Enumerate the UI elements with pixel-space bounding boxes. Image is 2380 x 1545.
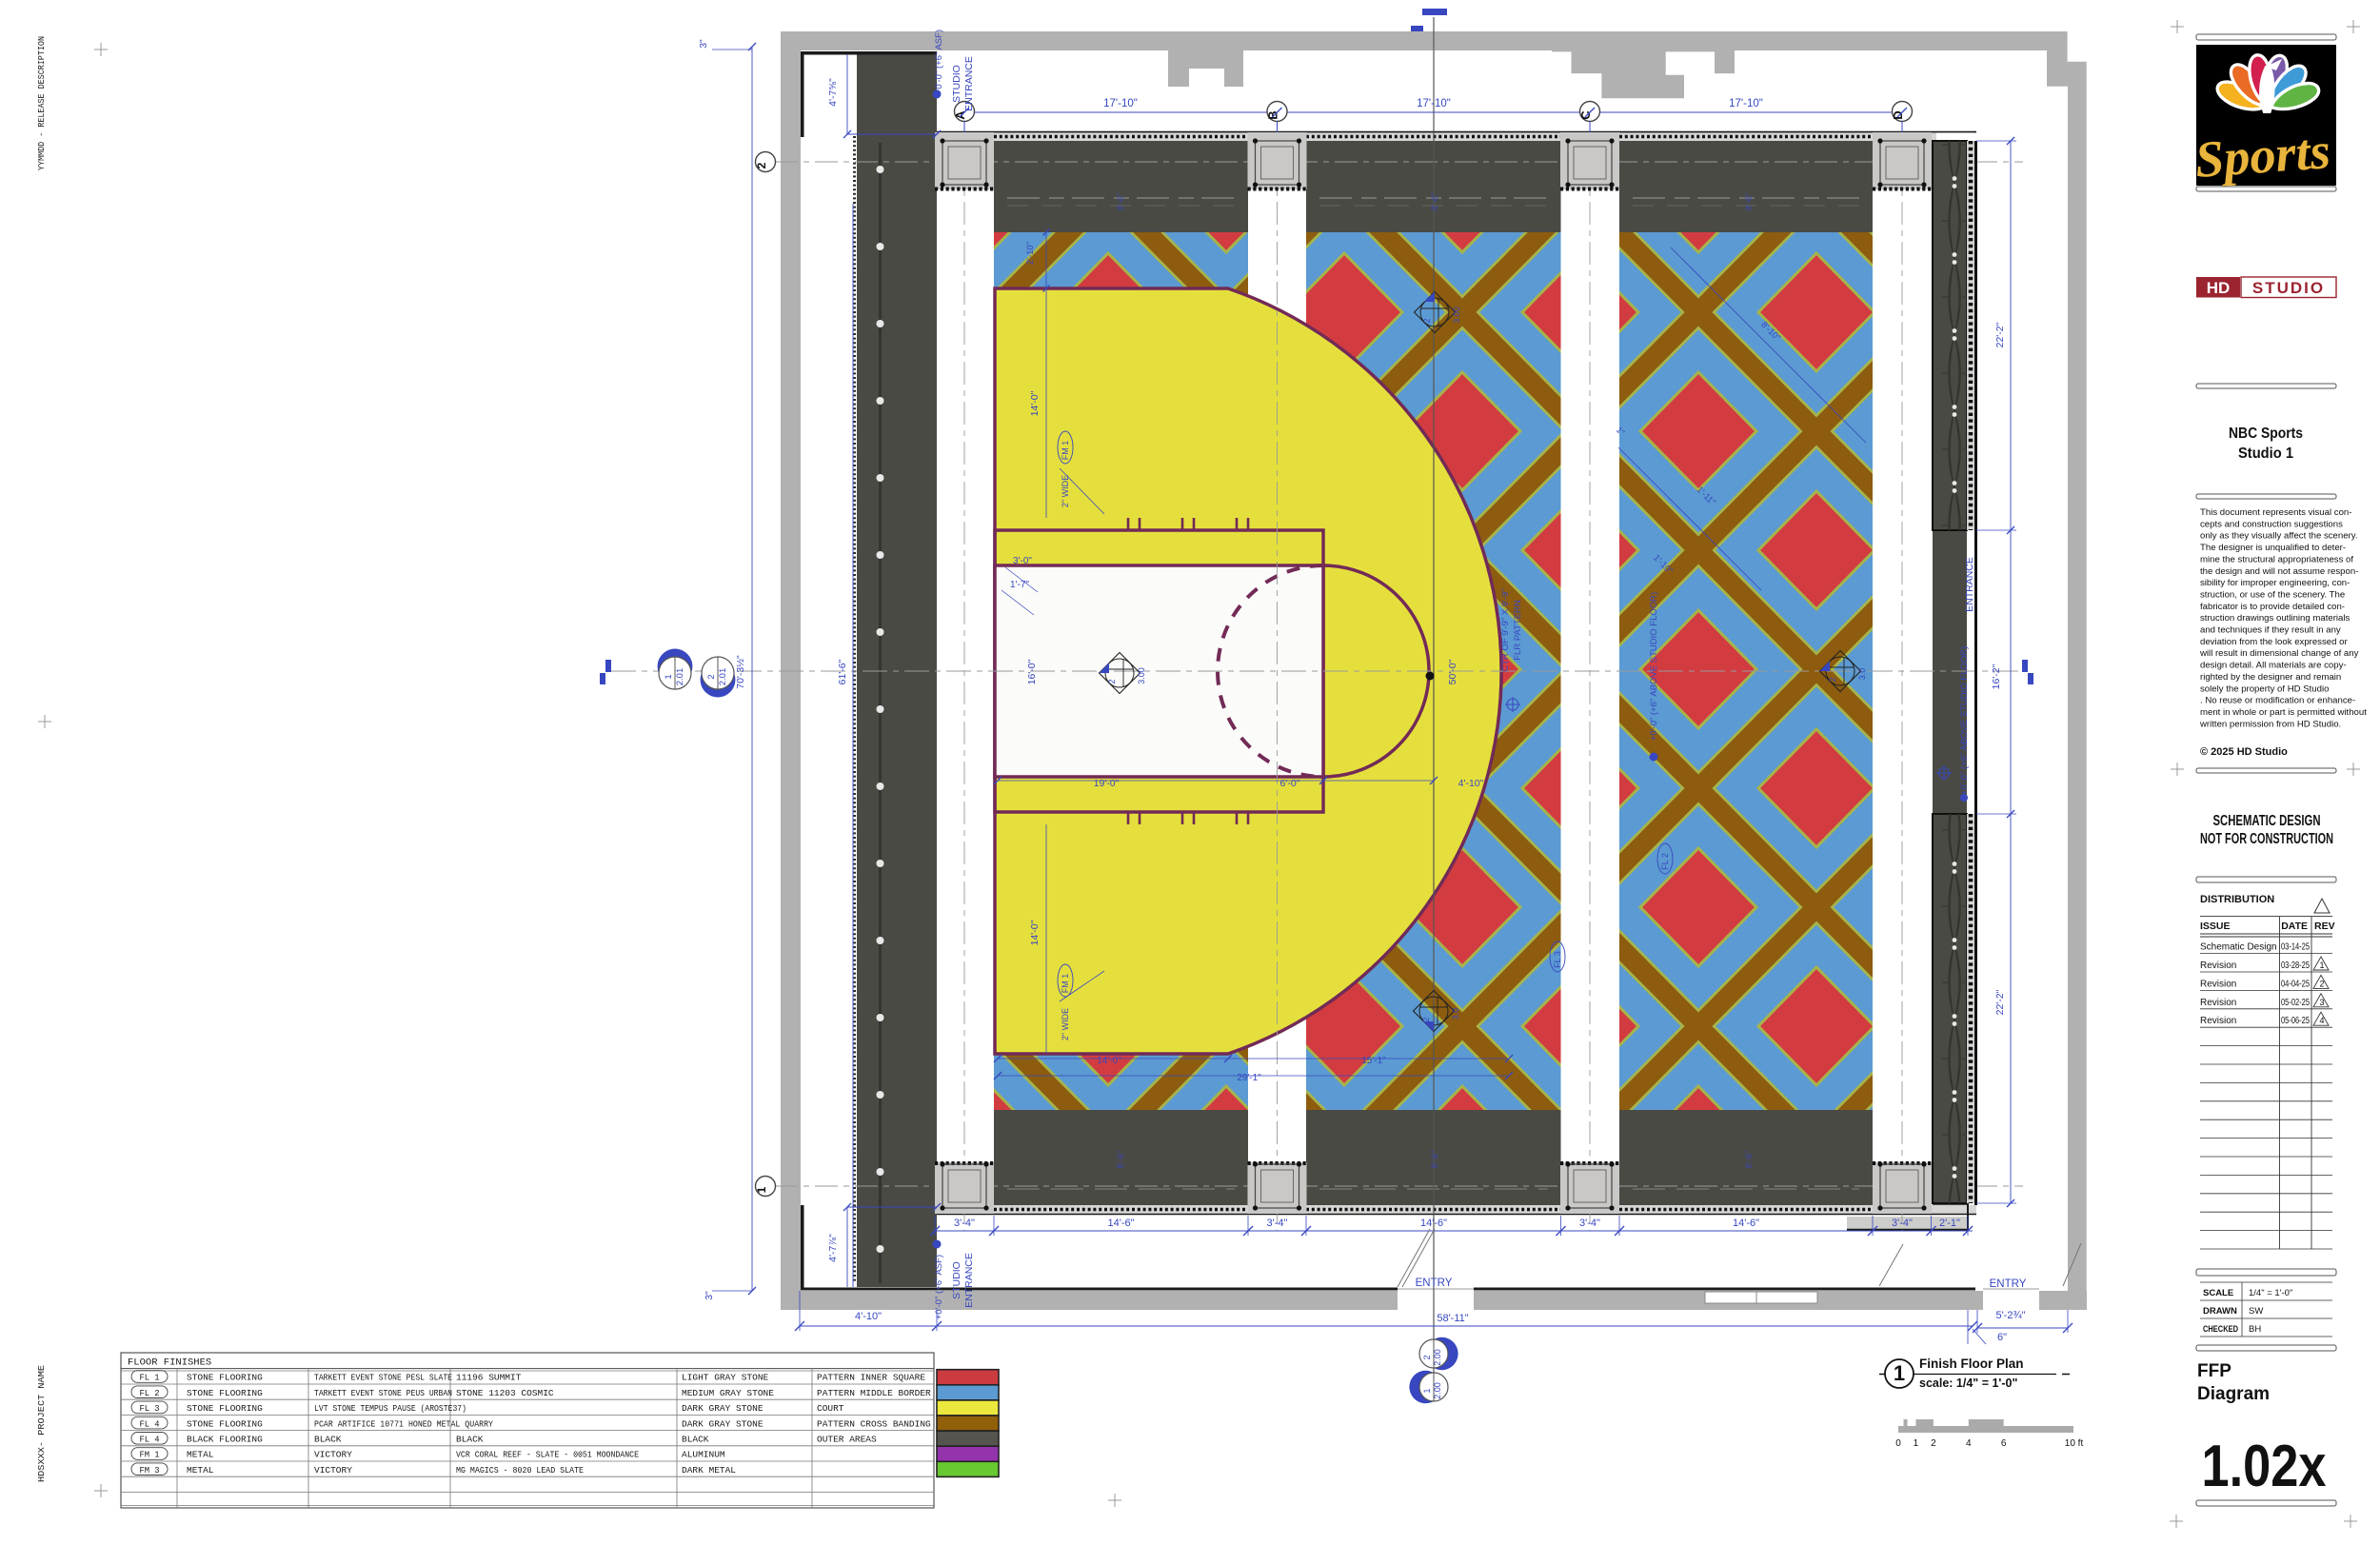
- svg-text:BLACK: BLACK: [682, 1435, 709, 1445]
- svg-text:3'-4": 3'-4": [1892, 1218, 1913, 1229]
- svg-text:VICTORY: VICTORY: [314, 1450, 352, 1460]
- svg-text:58'-11": 58'-11": [1437, 1313, 1468, 1324]
- svg-text:STONE FLOORING: STONE FLOORING: [187, 1403, 263, 1414]
- svg-text:The designer is unqualified to: The designer is unqualified to deter-: [2200, 543, 2346, 553]
- svg-text:FLR PATTERN: FLR PATTERN: [1513, 600, 1523, 661]
- svg-text:2: 2: [1422, 1355, 1432, 1359]
- svg-text:FL 4: FL 4: [139, 1419, 159, 1429]
- svg-text:CTR OF 9'-9" X 9'-9": CTR OF 9'-9" X 9'-9": [1500, 588, 1511, 671]
- svg-text:3: 3: [2319, 998, 2324, 1007]
- svg-text:struction drawings outlining m: struction drawings outlining materials: [2200, 613, 2350, 624]
- svg-text:14'-6": 14'-6": [1107, 1218, 1134, 1229]
- svg-text:and techniques if they result: and techniques if they result in any: [2200, 625, 2341, 636]
- svg-text:10 ft: 10 ft: [2065, 1438, 2084, 1449]
- svg-text:+0'-0" (+6" ASF): +0'-0" (+6" ASF): [934, 30, 944, 94]
- svg-text:14'-6": 14'-6": [1420, 1218, 1447, 1229]
- svg-text:2: 2: [1931, 1438, 1936, 1449]
- svg-text:This document represents visua: This document represents visual con-: [2200, 507, 2351, 518]
- svg-text:2'-10": 2'-10": [1025, 242, 1036, 265]
- svg-text:2: 2: [1107, 679, 1117, 683]
- svg-text:cepts and construction suggest: cepts and construction suggestions: [2200, 519, 2343, 529]
- svg-text:Schematic Design: Schematic Design: [2200, 942, 2277, 953]
- svg-text:DARK GRAY STONE: DARK GRAY STONE: [682, 1403, 764, 1414]
- svg-text:2.00: 2.00: [1433, 1382, 1442, 1399]
- svg-text:+0'-0" (+6" ABOVE STUDIO FLOOR: +0'-0" (+6" ABOVE STUDIO FLOOR): [1649, 592, 1659, 741]
- svg-text:FM 3: FM 3: [139, 1466, 159, 1476]
- svg-text:6: 6: [2001, 1438, 2007, 1449]
- svg-text:. No reuse or modification or: . No reuse or modification or enhance-: [2200, 696, 2355, 706]
- svg-text:14'-0": 14'-0": [1029, 920, 1041, 945]
- svg-text:8'-6": 8'-6": [1116, 1151, 1126, 1169]
- svg-text:22'-2": 22'-2": [1994, 322, 2006, 347]
- svg-text:3.0: 3.0: [1857, 668, 1867, 681]
- svg-text:50'-0": 50'-0": [1447, 659, 1458, 684]
- svg-text:29'-1": 29'-1": [1237, 1073, 1261, 1083]
- svg-text:17'-10": 17'-10": [1103, 98, 1138, 109]
- svg-text:17'-10": 17'-10": [1417, 98, 1451, 109]
- svg-text:11196 SUMMIT: 11196 SUMMIT: [456, 1373, 522, 1383]
- svg-text:FL 2: FL 2: [139, 1389, 159, 1398]
- svg-text:6": 6": [1997, 1332, 2007, 1343]
- svg-text:SCHEMATIC DESIGN: SCHEMATIC DESIGN: [2213, 813, 2321, 829]
- svg-text:METAL: METAL: [187, 1450, 214, 1460]
- svg-text:HDSXXX- PROJECT NAME: HDSXXX- PROJECT NAME: [36, 1365, 47, 1482]
- svg-text:4: 4: [2319, 1016, 2324, 1025]
- svg-text:BLACK: BLACK: [456, 1435, 484, 1445]
- svg-text:2.01: 2.01: [718, 668, 728, 686]
- svg-text:1.02x: 1.02x: [2202, 1434, 2327, 1499]
- svg-text:VICTORY: VICTORY: [314, 1465, 352, 1476]
- svg-text:ALUMINUM: ALUMINUM: [682, 1450, 725, 1460]
- svg-text:mine the structural appropriat: mine the structural appropriateness of: [2200, 554, 2353, 565]
- svg-text:17'-10": 17'-10": [1729, 98, 1763, 109]
- svg-text:6'-0": 6'-0": [1280, 778, 1300, 789]
- svg-text:FM 1: FM 1: [1061, 441, 1070, 461]
- svg-text:FM 1: FM 1: [139, 1451, 159, 1460]
- svg-text:DARK GRAY STONE: DARK GRAY STONE: [682, 1418, 764, 1429]
- svg-text:3'-4": 3'-4": [1267, 1218, 1288, 1229]
- svg-text:FL 3: FL 3: [1553, 951, 1562, 968]
- svg-text:Finish Floor Plan: Finish Floor Plan: [1919, 1357, 2024, 1371]
- svg-text:4'-10": 4'-10": [1458, 778, 1484, 789]
- svg-text:ENTRY: ENTRY: [1990, 1278, 2027, 1290]
- svg-text:struction, or use of the scene: struction, or use of the scenery. The: [2200, 589, 2345, 600]
- svg-text:Revision: Revision: [2200, 979, 2236, 989]
- svg-text:will result in dimensional cha: will result in dimensional change of any: [2199, 648, 2359, 659]
- svg-text:FFP: FFP: [2197, 1361, 2231, 1381]
- svg-text:3": 3": [698, 39, 709, 49]
- svg-text:61'-6": 61'-6": [837, 659, 848, 684]
- svg-text:16'-2": 16'-2": [1991, 664, 2002, 689]
- svg-text:2" WIDE: 2" WIDE: [1061, 475, 1070, 507]
- svg-text:FL 2: FL 2: [1660, 853, 1670, 870]
- svg-text:design detail. All materials: design detail. All materials are copy-: [2200, 661, 2347, 671]
- svg-text:CHECKED: CHECKED: [2203, 1324, 2238, 1335]
- svg-text:3'-4": 3'-4": [1579, 1218, 1600, 1229]
- svg-text:DISTRIBUTION: DISTRIBUTION: [2200, 894, 2274, 905]
- svg-text:REV: REV: [2314, 921, 2335, 932]
- svg-text:ment in whole or part is permi: ment in whole or part is permitted witho…: [2200, 707, 2367, 718]
- svg-text:BLACK FLOORING: BLACK FLOORING: [187, 1435, 263, 1445]
- svg-text:PATTERN CROSS BANDING: PATTERN CROSS BANDING: [817, 1418, 931, 1429]
- svg-text:8'-6": 8'-6": [1430, 193, 1440, 211]
- svg-text:STONE FLOORING: STONE FLOORING: [187, 1388, 263, 1398]
- svg-text:FL 3: FL 3: [139, 1404, 159, 1414]
- svg-text:1: 1: [664, 674, 674, 679]
- svg-text:© 2025 HD Studio: © 2025 HD Studio: [2200, 746, 2288, 758]
- svg-text:HD: HD: [2207, 279, 2231, 297]
- svg-text:TARKETT EVENT STONE PEUS URBAN: TARKETT EVENT STONE PEUS URBAN: [314, 1388, 452, 1398]
- svg-text:1: 1: [755, 1186, 768, 1193]
- svg-text:+0'-0" (+6" ASF): +0'-0" (+6" ASF): [934, 1255, 944, 1319]
- svg-text:ENTRANCE: ENTRANCE: [963, 1253, 975, 1308]
- svg-text:MG MAGICS - 8020 LEAD SLATE: MG MAGICS - 8020 LEAD SLATE: [456, 1465, 584, 1476]
- svg-text:14'-0": 14'-0": [1097, 1056, 1121, 1066]
- svg-text:STUDIO: STUDIO: [951, 1261, 962, 1299]
- svg-text:Diagram: Diagram: [2197, 1384, 2270, 1404]
- svg-text:05-02-25: 05-02-25: [2281, 998, 2310, 1008]
- svg-text:8'-6": 8'-6": [1744, 1151, 1755, 1169]
- svg-text:8'-6": 8'-6": [1430, 1151, 1440, 1169]
- svg-text:2'-1": 2'-1": [1939, 1218, 1960, 1229]
- svg-text:1: 1: [1422, 1388, 1432, 1393]
- svg-text:SW: SW: [2249, 1306, 2263, 1317]
- svg-text:3'-4": 3'-4": [954, 1218, 975, 1229]
- svg-text:0: 0: [1895, 1438, 1901, 1449]
- svg-text:PATTERN INNER SQUARE: PATTERN INNER SQUARE: [817, 1373, 925, 1383]
- svg-text:YYMMDD - RELEASE DESCRIPTION: YYMMDD - RELEASE DESCRIPTION: [36, 36, 47, 170]
- svg-text:MEDIUM GRAY STONE: MEDIUM GRAY STONE: [682, 1388, 774, 1398]
- svg-text:Studio 1: Studio 1: [2238, 446, 2293, 462]
- svg-text:4'-7⅝": 4'-7⅝": [827, 78, 839, 107]
- svg-text:1/4" = 1'-0": 1/4" = 1'-0": [2249, 1288, 2292, 1298]
- svg-text:LVT STONE TEMPUS PAUSE (AROSTE: LVT STONE TEMPUS PAUSE (AROSTE37): [314, 1403, 466, 1414]
- svg-text:STONE 11203 COSMIC: STONE 11203 COSMIC: [456, 1388, 554, 1398]
- svg-text:4'-10": 4'-10": [855, 1311, 882, 1322]
- svg-text:righted by the designer and re: righted by the designer and remain: [2200, 672, 2341, 683]
- svg-text:8'-6": 8'-6": [1116, 193, 1126, 211]
- svg-text:METAL: METAL: [187, 1465, 214, 1476]
- svg-text:TARKETT EVENT STONE PESL SLATE: TARKETT EVENT STONE PESL SLATE: [314, 1373, 452, 1383]
- svg-text:FL 1: FL 1: [139, 1374, 159, 1383]
- svg-text:2: 2: [1421, 1017, 1431, 1021]
- svg-text:SCALE: SCALE: [2203, 1288, 2233, 1298]
- svg-text:16'-0": 16'-0": [1026, 659, 1038, 684]
- svg-text:deviation from the look expres: deviation from the look expressed or: [2200, 637, 2348, 647]
- svg-text:NOT FOR CONSTRUCTION: NOT FOR CONSTRUCTION: [2200, 831, 2333, 847]
- svg-text:COURT: COURT: [817, 1403, 844, 1414]
- svg-text:FL 4: FL 4: [139, 1436, 159, 1445]
- svg-text:2.00: 2.00: [1433, 1349, 1442, 1366]
- svg-text:03-14-25: 03-14-25: [2281, 942, 2310, 953]
- svg-text:1: 1: [1914, 1438, 1919, 1449]
- svg-text:2: 2: [1422, 318, 1432, 323]
- svg-text:14'-6": 14'-6": [1733, 1218, 1759, 1229]
- svg-text:DRAWN: DRAWN: [2203, 1306, 2237, 1317]
- svg-text:solely the property of HD Stud: solely the property of HD Studio: [2200, 683, 2329, 694]
- svg-text:STONE FLOORING: STONE FLOORING: [187, 1373, 263, 1383]
- svg-text:FLOOR FINISHES: FLOOR FINISHES: [128, 1357, 211, 1369]
- svg-text:FM 1: FM 1: [1061, 974, 1070, 994]
- svg-text:14'-0": 14'-0": [1029, 390, 1041, 416]
- svg-text:Sports: Sports: [2193, 122, 2332, 188]
- svg-text:04-04-25: 04-04-25: [2281, 979, 2310, 989]
- svg-text:fabricator is to provide detai: fabricator is to provide detailed con-: [2200, 602, 2345, 612]
- svg-text:BLACK: BLACK: [314, 1435, 342, 1445]
- svg-text:1'-7": 1'-7": [1010, 580, 1029, 590]
- svg-text:PATTERN MIDDLE BORDER: PATTERN MIDDLE BORDER: [817, 1388, 931, 1398]
- svg-text:NBC Sports: NBC Sports: [2229, 426, 2303, 442]
- svg-text:the design and will not assume: the design and will not assume respon-: [2200, 566, 2358, 577]
- svg-text:LIGHT GRAY STONE: LIGHT GRAY STONE: [682, 1373, 769, 1383]
- svg-text:3": 3": [704, 1291, 715, 1300]
- svg-text:PCAR ARTIFICE 10771 HONED META: PCAR ARTIFICE 10771 HONED METAL QUARRY: [314, 1418, 493, 1429]
- svg-text:2: 2: [706, 674, 717, 679]
- svg-text:4: 4: [1966, 1438, 1972, 1449]
- svg-text:ENTRANCE: ENTRANCE: [1964, 557, 1975, 612]
- svg-text:BH: BH: [2249, 1324, 2261, 1335]
- svg-text:4'-7⅞": 4'-7⅞": [827, 1234, 839, 1262]
- svg-text:only as they visually affect t: only as they visually affect the scenery…: [2200, 531, 2358, 542]
- svg-text:sibility for improper engineer: sibility for improper engineering, con-: [2200, 578, 2350, 588]
- svg-text:3.00: 3.00: [1452, 307, 1461, 324]
- svg-text:+0'-0" (+6" ABOVE STUDIO FLOOR: +0'-0" (+6" ABOVE STUDIO FLOOR): [1959, 646, 1970, 795]
- svg-text:1: 1: [2319, 961, 2324, 970]
- svg-text:scale: 1/4" = 1'-0": scale: 1/4" = 1'-0": [1919, 1377, 2018, 1390]
- svg-text:22'-2": 22'-2": [1994, 989, 2006, 1015]
- svg-text:3'-0": 3'-0": [1013, 556, 1032, 566]
- svg-text:Revision: Revision: [2200, 1016, 2236, 1026]
- svg-text:written permission from HD Stu: written permission from HD Studio.: [2199, 719, 2341, 729]
- svg-text:05-06-25: 05-06-25: [2281, 1016, 2310, 1026]
- svg-text:8'-6": 8'-6": [1744, 193, 1755, 211]
- svg-text:VCR CORAL REEF - SLATE - 0051: VCR CORAL REEF - SLATE - 0051 MOONDANCE: [456, 1450, 639, 1460]
- svg-text:STUDIO: STUDIO: [951, 65, 962, 103]
- svg-text:2.01: 2.01: [675, 668, 685, 686]
- svg-text:19'-0": 19'-0": [1094, 778, 1120, 789]
- svg-text:OUTER AREAS: OUTER AREAS: [817, 1435, 877, 1445]
- svg-text:Revision: Revision: [2200, 998, 2236, 1008]
- svg-text:2: 2: [2319, 979, 2324, 988]
- svg-text:ENTRANCE: ENTRANCE: [963, 56, 975, 111]
- svg-text:2: 2: [1828, 677, 1837, 682]
- svg-text:2" WIDE: 2" WIDE: [1061, 1008, 1070, 1040]
- svg-text:STUDIO: STUDIO: [2252, 279, 2325, 297]
- svg-text:DATE: DATE: [2281, 921, 2308, 932]
- svg-text:5'-2¾": 5'-2¾": [1995, 1310, 2025, 1321]
- svg-text:03-28-25: 03-28-25: [2281, 961, 2310, 971]
- svg-text:3.00: 3.00: [1137, 667, 1146, 684]
- svg-text:3.0: 3.0: [1451, 1008, 1460, 1020]
- svg-text:15'-1": 15'-1": [1361, 1056, 1386, 1066]
- svg-text:1: 1: [1894, 1361, 1905, 1385]
- svg-text:ENTRY: ENTRY: [1416, 1278, 1453, 1289]
- svg-text:STONE FLOORING: STONE FLOORING: [187, 1418, 263, 1429]
- svg-text:2: 2: [755, 162, 768, 168]
- svg-text:DARK METAL: DARK METAL: [682, 1465, 736, 1476]
- svg-text:70'-3½": 70'-3½": [735, 655, 746, 689]
- svg-text:ISSUE: ISSUE: [2200, 921, 2231, 932]
- svg-text:Revision: Revision: [2200, 961, 2236, 971]
